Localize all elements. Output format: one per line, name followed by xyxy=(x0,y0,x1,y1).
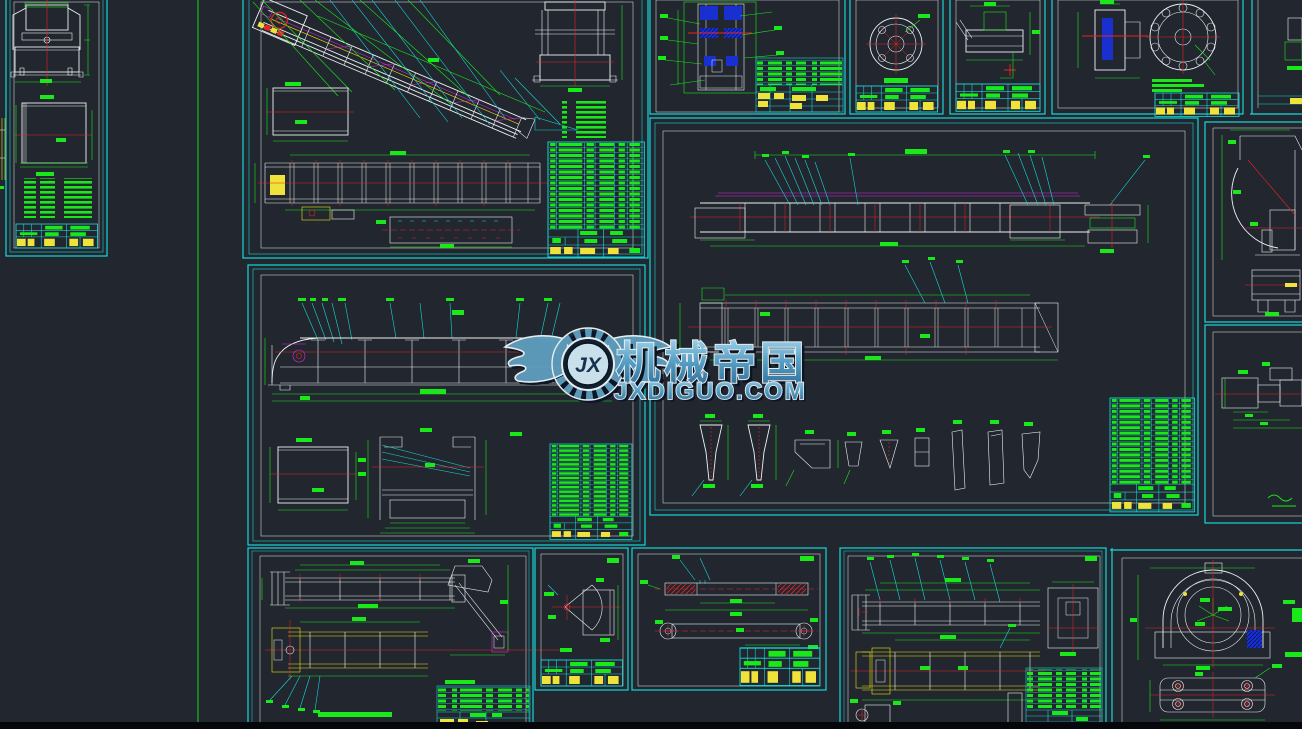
cad-canvas: JX 机械帝国 机械帝国 JXDIGUO.COM JXDIGUO.COM xyxy=(0,0,1302,729)
watermark-domain: JXDIGUO.COM xyxy=(614,378,807,405)
canvas-edge xyxy=(0,722,1302,729)
logo-monogram: JX xyxy=(575,354,603,377)
cad-drawing: JX 机械帝国 机械帝国 JXDIGUO.COM JXDIGUO.COM xyxy=(0,0,1302,729)
